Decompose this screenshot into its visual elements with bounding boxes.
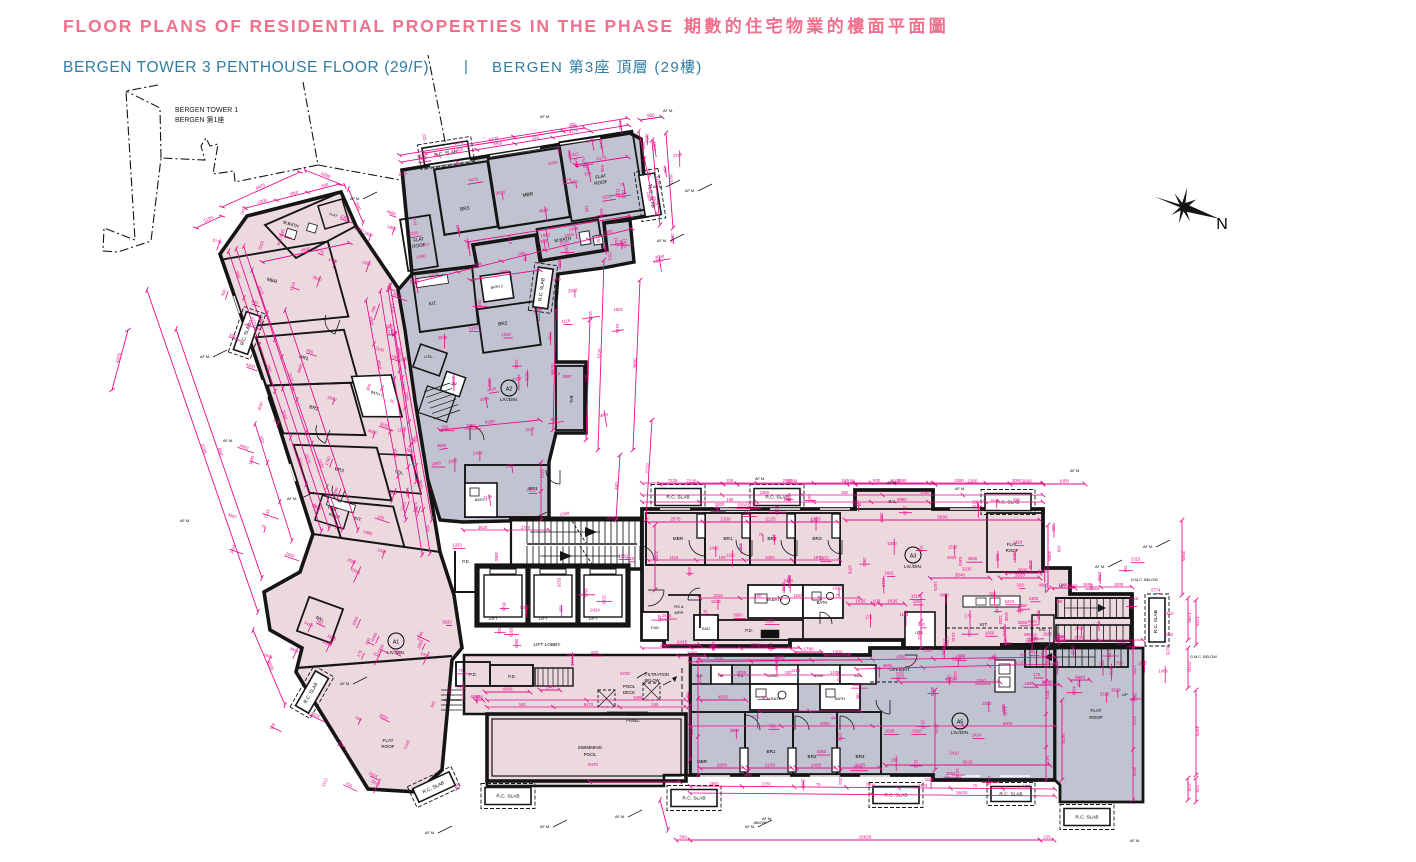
svg-text:8470: 8470 <box>584 702 594 707</box>
svg-text:1050: 1050 <box>1059 479 1070 484</box>
svg-text:1115: 1115 <box>913 759 918 768</box>
svg-text:175: 175 <box>865 615 873 620</box>
svg-text:4260: 4260 <box>896 654 906 659</box>
svg-text:BR1: BR1 <box>723 536 733 542</box>
svg-text:930: 930 <box>600 165 605 173</box>
svg-text:3900: 3900 <box>862 557 867 567</box>
svg-text:WMC: WMC <box>769 673 779 678</box>
svg-text:2390: 2390 <box>760 490 770 495</box>
svg-text:4000: 4000 <box>820 721 830 726</box>
svg-text:2820: 2820 <box>1012 551 1017 561</box>
svg-text:1050: 1050 <box>501 332 511 337</box>
svg-text:750: 750 <box>447 687 452 695</box>
svg-text:2410: 2410 <box>951 632 956 642</box>
svg-text:900: 900 <box>995 554 1000 562</box>
svg-text:1510: 1510 <box>948 544 958 549</box>
svg-text:5300: 5300 <box>709 643 719 648</box>
svg-text:SWIMMING: SWIMMING <box>578 745 603 750</box>
svg-text:1635: 1635 <box>990 498 1000 503</box>
svg-text:7225: 7225 <box>668 478 678 483</box>
svg-text:75: 75 <box>703 609 708 614</box>
svg-text:930: 930 <box>873 478 881 483</box>
svg-text:5350: 5350 <box>1017 604 1022 614</box>
svg-text:1685: 1685 <box>853 682 863 687</box>
svg-text:1113: 1113 <box>967 628 972 637</box>
svg-text:AF M.: AF M. <box>653 185 663 189</box>
svg-text:1410: 1410 <box>881 578 886 588</box>
svg-text:2410: 2410 <box>451 376 456 386</box>
svg-text:2315: 2315 <box>896 672 901 682</box>
svg-text:2415: 2415 <box>660 643 670 648</box>
svg-text:150: 150 <box>841 478 849 483</box>
svg-text:1710: 1710 <box>1015 660 1025 665</box>
svg-text:BR1: BR1 <box>767 749 776 754</box>
svg-text:150: 150 <box>519 702 527 707</box>
svg-text:AF M.: AF M. <box>745 825 755 829</box>
svg-text:3620: 3620 <box>502 602 507 612</box>
svg-text:100: 100 <box>1051 525 1056 533</box>
svg-text:BR3: BR3 <box>812 536 822 542</box>
svg-text:75: 75 <box>459 668 464 673</box>
svg-text:175: 175 <box>752 715 760 720</box>
svg-text:1050: 1050 <box>1004 612 1009 622</box>
svg-text:4775: 4775 <box>697 675 702 685</box>
svg-text:1625: 1625 <box>832 586 842 591</box>
svg-text:EAD: EAD <box>702 626 710 631</box>
svg-text:5350: 5350 <box>508 628 513 638</box>
svg-text:BAL.: BAL. <box>569 395 574 404</box>
svg-text:AF M.: AF M. <box>340 682 350 686</box>
svg-text:2820: 2820 <box>662 613 672 618</box>
svg-text:4685: 4685 <box>883 663 893 668</box>
svg-text:440: 440 <box>614 481 619 489</box>
svg-text:3587: 3587 <box>972 505 982 510</box>
svg-text:3725: 3725 <box>1074 635 1084 640</box>
svg-text:1000: 1000 <box>1114 582 1124 587</box>
svg-text:R.C. SLAB: R.C. SLAB <box>1153 610 1159 633</box>
svg-text:1601: 1601 <box>608 252 613 262</box>
svg-text:3950: 3950 <box>514 639 519 649</box>
svg-text:|: | <box>464 58 468 75</box>
svg-text:2410: 2410 <box>1076 677 1081 687</box>
svg-text:G.M.C. BELOW: G.M.C. BELOW <box>1131 578 1158 582</box>
svg-text:1115: 1115 <box>670 555 679 560</box>
svg-text:R.C. SLAB: R.C. SLAB <box>1075 815 1098 821</box>
svg-text:4308: 4308 <box>502 687 513 692</box>
svg-text:5774: 5774 <box>1151 588 1161 593</box>
svg-text:BR3: BR3 <box>856 754 865 759</box>
svg-text:4300: 4300 <box>487 378 492 388</box>
svg-text:2800: 2800 <box>709 781 719 786</box>
svg-text:1635: 1635 <box>456 685 466 690</box>
svg-text:5225: 5225 <box>711 599 721 604</box>
svg-text:1410: 1410 <box>1013 539 1023 544</box>
svg-text:2575: 2575 <box>670 517 681 522</box>
svg-text:3950: 3950 <box>525 372 530 382</box>
svg-text:AF M.: AF M. <box>657 239 667 243</box>
svg-text:2300: 2300 <box>687 651 698 656</box>
svg-text:POOL: POOL <box>584 752 597 757</box>
svg-text:AF M.: AF M. <box>1095 565 1105 569</box>
svg-text:1456: 1456 <box>622 238 627 248</box>
svg-text:3900: 3900 <box>939 593 949 598</box>
svg-text:5420: 5420 <box>1061 733 1066 744</box>
svg-text:100: 100 <box>891 757 899 762</box>
svg-text:3235: 3235 <box>557 258 562 268</box>
svg-text:AF M.: AF M. <box>685 189 695 193</box>
svg-text:1510: 1510 <box>1038 569 1048 574</box>
svg-text:3620: 3620 <box>584 588 589 598</box>
svg-text:100: 100 <box>558 605 563 613</box>
svg-text:75: 75 <box>816 782 821 787</box>
svg-text:3090: 3090 <box>1012 478 1022 483</box>
svg-text:2050: 2050 <box>946 771 956 776</box>
svg-text:780: 780 <box>989 592 997 597</box>
svg-text:3620: 3620 <box>442 619 452 624</box>
svg-text:3235: 3235 <box>1166 646 1171 656</box>
svg-text:1456: 1456 <box>1159 669 1169 674</box>
svg-text:3950: 3950 <box>730 728 740 733</box>
svg-text:3900: 3900 <box>494 552 499 562</box>
svg-text:1333: 1333 <box>953 671 958 681</box>
svg-text:1601: 1601 <box>884 571 894 576</box>
svg-text:1410: 1410 <box>791 668 801 673</box>
svg-text:100: 100 <box>719 555 727 560</box>
svg-text:2400: 2400 <box>811 763 822 768</box>
svg-text:6825: 6825 <box>1022 784 1032 789</box>
svg-text:4680: 4680 <box>968 556 978 561</box>
svg-text:1590: 1590 <box>1083 582 1093 587</box>
svg-text:UP: UP <box>1122 692 1128 697</box>
svg-text:1780: 1780 <box>1097 572 1102 582</box>
svg-text:4920: 4920 <box>485 419 496 425</box>
svg-text:3620: 3620 <box>1111 688 1121 693</box>
svg-text:LIFT: LIFT <box>589 616 598 621</box>
svg-text:AF M.: AF M. <box>1070 469 1080 473</box>
svg-text:2600: 2600 <box>783 478 793 483</box>
svg-text:2820: 2820 <box>982 701 992 706</box>
svg-text:1115: 1115 <box>1057 634 1066 639</box>
svg-text:3620: 3620 <box>1027 619 1037 624</box>
svg-text:1050: 1050 <box>920 490 930 495</box>
svg-text:300: 300 <box>679 835 687 840</box>
svg-text:1410: 1410 <box>570 657 575 667</box>
svg-text:FLAT: FLAT <box>1091 708 1102 713</box>
svg-text:5225: 5225 <box>557 578 562 588</box>
svg-text:150: 150 <box>584 374 589 382</box>
svg-text:930: 930 <box>772 534 777 542</box>
svg-text:FLOOR PLANS OF RESIDENTIAL PRO: FLOOR PLANS OF RESIDENTIAL PROPERTIES IN… <box>63 16 674 36</box>
svg-text:1625: 1625 <box>588 311 593 321</box>
svg-text:440: 440 <box>738 543 743 551</box>
svg-text:2100: 2100 <box>902 506 907 516</box>
svg-text:BERGEN TOWER 3 PENTHOUSE FLOO: BERGEN TOWER 3 PENTHOUSE FLOOR (29/F) <box>63 59 429 76</box>
svg-text:75: 75 <box>836 593 841 598</box>
svg-text:R.C. SLAB: R.C. SLAB <box>682 796 705 802</box>
svg-text:3385: 3385 <box>1047 551 1052 562</box>
svg-text:2424: 2424 <box>972 732 982 737</box>
svg-text:5350: 5350 <box>958 557 963 567</box>
svg-text:1600: 1600 <box>832 650 843 655</box>
svg-text:5350: 5350 <box>765 555 775 560</box>
svg-text:2415: 2415 <box>677 640 688 645</box>
svg-text:3540: 3540 <box>955 573 966 578</box>
svg-text:RS &: RS & <box>674 604 684 609</box>
svg-text:AF M.: AF M. <box>223 439 233 443</box>
svg-text:5350: 5350 <box>888 541 898 546</box>
svg-text:1780: 1780 <box>1107 649 1112 659</box>
svg-text:1113: 1113 <box>615 188 620 197</box>
svg-text:4925: 4925 <box>1132 767 1137 777</box>
svg-text:175: 175 <box>1033 672 1041 677</box>
svg-text:AF M.: AF M. <box>520 517 530 521</box>
svg-text:2100: 2100 <box>720 517 731 522</box>
svg-text:6300: 6300 <box>1003 721 1013 726</box>
svg-text:1510: 1510 <box>1164 611 1174 616</box>
svg-text:AF M.: AF M. <box>350 197 360 201</box>
svg-text:175: 175 <box>965 613 973 618</box>
svg-text:1113: 1113 <box>745 769 750 778</box>
svg-text:AF M.: AF M. <box>200 355 210 359</box>
svg-text:5350: 5350 <box>817 749 827 754</box>
svg-text:2800: 2800 <box>717 763 728 768</box>
svg-text:BERGEN 第3座 頂層 (29樓): BERGEN 第3座 頂層 (29樓) <box>492 58 703 76</box>
svg-text:2410: 2410 <box>1071 645 1076 655</box>
svg-text:750: 750 <box>1123 565 1128 573</box>
svg-text:1410: 1410 <box>709 546 719 551</box>
svg-text:ROOF: ROOF <box>381 744 394 749</box>
svg-text:ROOF: ROOF <box>1089 715 1102 720</box>
svg-text:A1: A1 <box>393 640 400 646</box>
svg-text:1333: 1333 <box>998 615 1003 625</box>
svg-text:100: 100 <box>1017 582 1025 587</box>
svg-text:440: 440 <box>497 627 502 635</box>
svg-text:1333: 1333 <box>452 543 462 548</box>
svg-text:2595: 2595 <box>687 567 692 577</box>
svg-text:2595: 2595 <box>1018 620 1028 625</box>
svg-text:1870: 1870 <box>813 555 823 560</box>
svg-text:300: 300 <box>715 506 720 514</box>
svg-text:BERGEN 第1座: BERGEN 第1座 <box>175 115 224 124</box>
svg-text:1625: 1625 <box>933 582 938 592</box>
svg-text:1850: 1850 <box>466 423 476 428</box>
svg-text:150: 150 <box>441 425 449 430</box>
svg-text:3620: 3620 <box>478 525 488 530</box>
svg-text:1780: 1780 <box>1114 661 1124 666</box>
svg-text:1635: 1635 <box>438 335 448 340</box>
svg-text:2650: 2650 <box>437 443 447 448</box>
svg-text:2150: 2150 <box>765 763 776 768</box>
svg-text:3015: 3015 <box>934 723 939 734</box>
svg-text:3550: 3550 <box>897 478 907 483</box>
svg-text:AF M.: AF M. <box>887 481 897 485</box>
svg-text:2400: 2400 <box>866 782 876 787</box>
svg-text:1050: 1050 <box>1164 632 1174 637</box>
svg-text:LIFT: LIFT <box>539 616 548 621</box>
svg-text:BELOW: BELOW <box>644 678 659 683</box>
svg-text:3900: 3900 <box>879 512 884 522</box>
svg-text:BERGEN TOWER 1: BERGEN TOWER 1 <box>175 107 238 114</box>
svg-text:175: 175 <box>811 518 819 523</box>
svg-text:5350: 5350 <box>520 605 530 610</box>
svg-text:AF M.: AF M. <box>425 831 435 835</box>
svg-text:FLAT: FLAT <box>383 738 394 743</box>
svg-text:5465: 5465 <box>634 695 644 700</box>
svg-text:3900: 3900 <box>733 613 743 618</box>
svg-text:4680: 4680 <box>1071 686 1076 696</box>
svg-text:2390: 2390 <box>954 478 964 483</box>
svg-text:3587: 3587 <box>1001 704 1006 714</box>
svg-text:BR2: BR2 <box>808 754 817 759</box>
svg-text:750: 750 <box>685 691 690 699</box>
svg-text:FAD: FAD <box>651 625 659 630</box>
svg-text:440: 440 <box>831 715 839 720</box>
svg-text:1050: 1050 <box>551 276 561 281</box>
svg-text:LIV./DIN.: LIV./DIN. <box>904 564 922 569</box>
svg-text:2424: 2424 <box>590 608 600 613</box>
svg-text:3900: 3900 <box>930 687 935 697</box>
svg-text:6890: 6890 <box>897 497 907 502</box>
svg-text:2050: 2050 <box>781 582 786 592</box>
svg-text:5774: 5774 <box>1003 635 1008 645</box>
svg-text:930: 930 <box>1032 633 1037 641</box>
svg-text:2410: 2410 <box>615 324 620 334</box>
svg-text:1601: 1601 <box>614 307 624 312</box>
svg-text:1456: 1456 <box>1075 625 1085 630</box>
svg-text:2315: 2315 <box>1100 692 1110 697</box>
svg-text:2410: 2410 <box>949 751 959 756</box>
svg-text:4300: 4300 <box>1029 596 1039 601</box>
svg-text:MBR: MBR <box>673 536 684 542</box>
svg-text:P.D.: P.D. <box>508 674 516 679</box>
svg-text:150: 150 <box>726 497 734 502</box>
svg-text:440: 440 <box>995 606 1000 614</box>
svg-text:2425: 2425 <box>918 783 928 788</box>
svg-text:2100: 2100 <box>1116 640 1126 645</box>
svg-text:R.C. SLAB: R.C. SLAB <box>999 792 1022 798</box>
svg-text:2410: 2410 <box>540 469 545 479</box>
svg-text:MBR: MBR <box>697 759 708 764</box>
svg-text:1333: 1333 <box>838 775 843 785</box>
svg-text:1685: 1685 <box>1043 631 1053 636</box>
svg-text:2210: 2210 <box>1187 661 1192 672</box>
svg-text:A3: A3 <box>910 554 917 560</box>
svg-text:2150: 2150 <box>761 781 771 786</box>
svg-text:1780: 1780 <box>521 525 531 530</box>
svg-text:1910: 1910 <box>668 174 674 185</box>
svg-text:4680: 4680 <box>1039 582 1049 587</box>
svg-text:UP: UP <box>1059 584 1065 588</box>
svg-text:2050: 2050 <box>1028 560 1033 570</box>
svg-text:3235: 3235 <box>962 567 972 572</box>
svg-text:16625: 16625 <box>956 790 968 795</box>
svg-text:950: 950 <box>784 497 792 502</box>
svg-text:150: 150 <box>1013 497 1021 502</box>
svg-text:5720: 5720 <box>620 671 630 676</box>
svg-text:75: 75 <box>972 783 977 788</box>
svg-text:4025: 4025 <box>737 670 747 675</box>
svg-text:AF M.: AF M. <box>755 477 765 481</box>
svg-text:1780: 1780 <box>944 637 949 647</box>
svg-text:AF M.: AF M. <box>663 109 673 113</box>
svg-text:1050: 1050 <box>853 765 863 770</box>
svg-text:2210: 2210 <box>1132 716 1137 726</box>
svg-text:5225: 5225 <box>947 674 952 684</box>
svg-text:780: 780 <box>856 692 861 700</box>
svg-text:FILTRATION: FILTRATION <box>645 672 669 677</box>
svg-text:16625: 16625 <box>859 835 872 840</box>
svg-text:1115: 1115 <box>925 777 934 782</box>
svg-text:UTIL.: UTIL. <box>424 355 433 359</box>
svg-text:150: 150 <box>651 702 659 707</box>
svg-text:R.C. SLAB: R.C. SLAB <box>496 794 519 800</box>
svg-text:1050: 1050 <box>985 630 995 635</box>
svg-text:2315: 2315 <box>514 359 519 369</box>
svg-text:100: 100 <box>755 593 763 598</box>
svg-text:1870: 1870 <box>625 556 635 561</box>
svg-text:POOL: POOL <box>623 684 636 689</box>
svg-text:2820: 2820 <box>947 555 957 560</box>
svg-text:780: 780 <box>918 545 923 553</box>
svg-text:225: 225 <box>1187 784 1192 792</box>
svg-text:8470: 8470 <box>588 762 598 767</box>
svg-text:LIFT LOBBY: LIFT LOBBY <box>533 642 561 648</box>
svg-text:790: 790 <box>547 333 552 341</box>
svg-text:1625: 1625 <box>622 189 627 199</box>
svg-text:1050: 1050 <box>837 732 842 742</box>
svg-text:2315: 2315 <box>713 593 723 598</box>
svg-text:R.C. SLAB: R.C. SLAB <box>884 793 907 799</box>
svg-text:5225: 5225 <box>599 209 604 219</box>
svg-text:540: 540 <box>546 685 554 690</box>
svg-text:1870: 1870 <box>1108 666 1113 676</box>
svg-text:780: 780 <box>744 511 752 516</box>
svg-text:100: 100 <box>1057 545 1062 553</box>
svg-text:930: 930 <box>591 650 599 655</box>
svg-text:1590: 1590 <box>1068 584 1078 589</box>
svg-text:AF M.: AF M. <box>540 115 550 119</box>
svg-text:1113: 1113 <box>769 642 774 651</box>
svg-text:1510: 1510 <box>774 506 779 516</box>
svg-text:N: N <box>1216 216 1228 233</box>
svg-text:1113: 1113 <box>900 612 909 617</box>
svg-text:2050: 2050 <box>917 630 922 640</box>
svg-text:100: 100 <box>785 670 793 675</box>
svg-text:AF M.: AF M. <box>540 825 550 829</box>
svg-text:1625: 1625 <box>793 593 803 598</box>
svg-text:1590: 1590 <box>1024 681 1034 686</box>
svg-text:AF M.: AF M. <box>180 519 190 523</box>
svg-text:AF M.: AF M. <box>615 815 625 819</box>
svg-text:1285: 1285 <box>1187 612 1192 623</box>
svg-text:MPR: MPR <box>675 610 684 615</box>
svg-text:BATH: BATH <box>835 696 845 701</box>
svg-text:4025: 4025 <box>718 695 729 700</box>
svg-text:5420: 5420 <box>1045 756 1050 766</box>
svg-text:790: 790 <box>1055 599 1063 604</box>
svg-text:4925: 4925 <box>1195 726 1200 737</box>
svg-text:1590: 1590 <box>765 619 775 624</box>
svg-text:1625: 1625 <box>887 599 898 604</box>
svg-text:P.D.: P.D. <box>469 672 477 677</box>
svg-text:1435: 1435 <box>830 670 840 675</box>
svg-text:R.C. SLAB: R.C. SLAB <box>666 495 689 501</box>
svg-text:6475: 6475 <box>775 656 785 661</box>
svg-text:75: 75 <box>1096 622 1101 627</box>
svg-text:G.M.C. BELOW: G.M.C. BELOW <box>1190 655 1217 659</box>
svg-text:3900: 3900 <box>1129 600 1134 610</box>
svg-text:4680: 4680 <box>470 694 480 699</box>
